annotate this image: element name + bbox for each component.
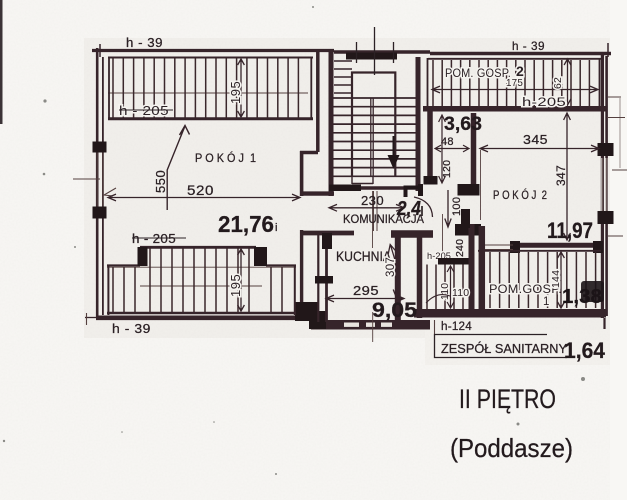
svg-text:h - 39: h - 39 — [112, 322, 151, 336]
svg-text:h - 205: h - 205 — [119, 104, 169, 118]
svg-text:KOMUNIKACJA: KOMUNIKACJA — [343, 214, 424, 226]
svg-text:h-124: h-124 — [441, 321, 472, 333]
svg-text:21,76: 21,76 — [218, 211, 274, 237]
svg-text:KUCHNIA: KUCHNIA — [336, 249, 391, 264]
svg-text:(Poddasze): (Poddasze) — [450, 433, 573, 463]
svg-text:1,64: 1,64 — [564, 338, 606, 363]
svg-text:120: 120 — [441, 160, 453, 178]
svg-text:230: 230 — [361, 193, 384, 208]
svg-text:II PIĘTRO: II PIĘTRO — [459, 384, 556, 414]
svg-text:110: 110 — [452, 287, 469, 299]
svg-text:110: 110 — [439, 283, 451, 300]
svg-text:62: 62 — [552, 77, 564, 89]
svg-text:h-205: h-205 — [522, 97, 566, 109]
svg-text:ZESPÓŁ SANITARNY: ZESPÓŁ SANITARNY — [441, 341, 568, 356]
svg-text:144: 144 — [550, 270, 562, 288]
svg-text:195: 195 — [228, 81, 243, 104]
svg-text:347: 347 — [554, 165, 568, 186]
svg-text:307: 307 — [385, 257, 397, 277]
svg-text:345: 345 — [523, 132, 548, 147]
svg-text:48: 48 — [441, 136, 454, 148]
svg-text:9,05: 9,05 — [372, 299, 417, 322]
svg-text:i: i — [275, 222, 277, 234]
svg-text:195: 195 — [228, 274, 243, 297]
svg-text:295: 295 — [353, 284, 379, 298]
svg-text:h - 39: h - 39 — [126, 36, 163, 50]
svg-text:11,97: 11,97 — [547, 218, 593, 243]
svg-text:POM. GOSP.: POM. GOSP. — [445, 68, 511, 80]
svg-text:1: 1 — [543, 296, 549, 308]
svg-text:550: 550 — [153, 170, 168, 193]
svg-text:240: 240 — [454, 239, 466, 257]
svg-text:3,63: 3,63 — [444, 114, 482, 135]
svg-text:h - 39: h - 39 — [512, 39, 545, 53]
svg-text:520: 520 — [187, 183, 214, 198]
svg-text:175: 175 — [506, 77, 523, 89]
svg-text:P O K Ó J 1: P O K Ó J 1 — [195, 150, 256, 165]
svg-text:h - 205: h - 205 — [132, 232, 176, 246]
svg-text:P O K Ó J 2: P O K Ó J 2 — [493, 187, 547, 202]
